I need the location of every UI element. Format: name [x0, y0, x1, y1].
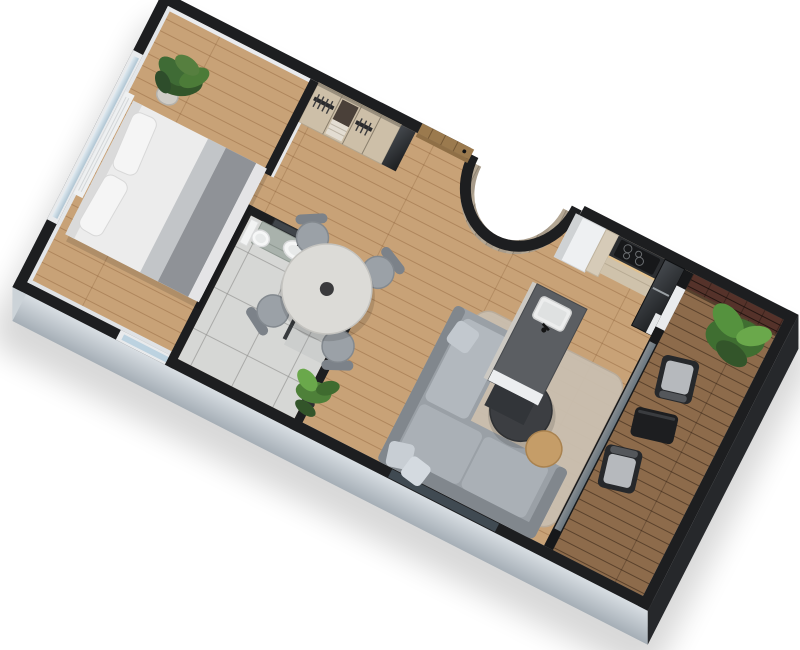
floor-plan-render — [0, 0, 800, 650]
apartment-group — [0, 0, 800, 650]
floor-plan-stage — [0, 0, 800, 650]
